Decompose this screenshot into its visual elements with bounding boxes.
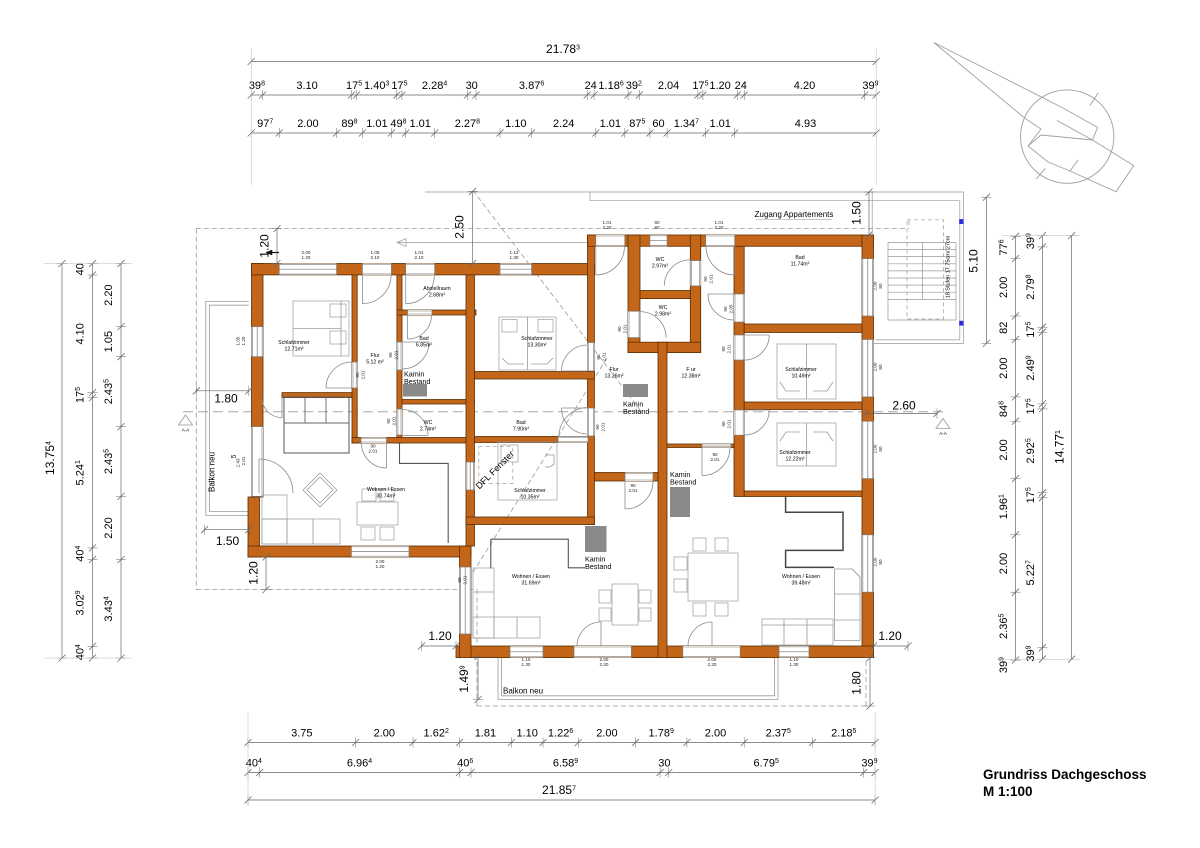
svg-text:24: 24 xyxy=(585,80,597,92)
svg-text:1.50: 1.50 xyxy=(216,534,240,548)
svg-text:Bestand: Bestand xyxy=(404,377,430,386)
svg-text:2.20: 2.20 xyxy=(708,662,717,667)
svg-text:80: 80 xyxy=(878,446,883,452)
svg-text:80: 80 xyxy=(878,283,883,289)
svg-text:WC: WC xyxy=(424,420,433,426)
svg-text:2.00: 2.00 xyxy=(998,439,1010,460)
svg-text:Bad: Bad xyxy=(516,420,525,426)
svg-text:Wohnen / Essen: Wohnen / Essen xyxy=(782,574,820,580)
svg-text:Wohnen / Essen: Wohnen / Essen xyxy=(512,574,550,580)
svg-text:2.00: 2.00 xyxy=(998,357,1010,378)
svg-text:90: 90 xyxy=(703,276,708,282)
svg-text:1.05: 1.05 xyxy=(236,336,241,345)
svg-text:1.01: 1.01 xyxy=(366,118,387,130)
svg-text:1.20: 1.20 xyxy=(302,255,311,260)
svg-text:4.93: 4.93 xyxy=(795,118,816,130)
svg-text:80: 80 xyxy=(878,364,883,370)
svg-text:1.10: 1.10 xyxy=(516,728,537,740)
svg-text:90: 90 xyxy=(721,421,726,427)
svg-text:Bestand: Bestand xyxy=(670,478,696,487)
svg-text:90: 90 xyxy=(386,418,391,424)
svg-text:2.98m²: 2.98m² xyxy=(655,312,671,318)
svg-text:Flur: Flur xyxy=(371,353,380,359)
svg-text:7.90m²: 7.90m² xyxy=(513,427,529,433)
svg-text:1.10: 1.10 xyxy=(505,118,526,130)
svg-text:5.10: 5.10 xyxy=(967,249,981,273)
svg-text:1.30: 1.30 xyxy=(510,255,519,260)
svg-text:1.50: 1.50 xyxy=(850,201,864,225)
svg-text:1.81: 1.81 xyxy=(475,728,496,740)
svg-text:1.01: 1.01 xyxy=(600,118,621,130)
svg-text:Schlafzimmer: Schlafzimmer xyxy=(514,488,546,494)
svg-text:12.38m²: 12.38m² xyxy=(681,374,700,380)
svg-text:Grundriss Dachgeschoss: Grundriss Dachgeschoss xyxy=(983,767,1147,782)
svg-text:90: 90 xyxy=(355,372,360,378)
svg-text:13.754: 13.754 xyxy=(43,441,57,475)
svg-text:1.80: 1.80 xyxy=(850,671,864,695)
svg-text:13.26m²: 13.26m² xyxy=(604,374,623,380)
svg-text:Schlafzimmer: Schlafzimmer xyxy=(278,340,310,346)
svg-text:2.01: 2.01 xyxy=(601,422,606,431)
svg-text:2.60: 2.60 xyxy=(892,399,916,413)
svg-text:Bad: Bad xyxy=(795,255,804,261)
svg-text:WC: WC xyxy=(656,257,665,263)
svg-text:1.20: 1.20 xyxy=(709,80,730,92)
svg-text:80: 80 xyxy=(878,559,883,565)
svg-text:Schlafzimmer: Schlafzimmer xyxy=(521,336,553,342)
svg-text:90: 90 xyxy=(457,577,462,583)
svg-text:2.20: 2.20 xyxy=(603,225,612,230)
svg-text:4.20: 4.20 xyxy=(794,80,815,92)
svg-text:Schlafzimmer: Schlafzimmer xyxy=(785,367,817,373)
svg-text:1.30: 1.30 xyxy=(522,662,531,667)
svg-text:24: 24 xyxy=(735,80,747,92)
svg-text:1.20: 1.20 xyxy=(376,564,385,569)
svg-text:3.75: 3.75 xyxy=(291,728,312,740)
svg-text:2.50: 2.50 xyxy=(453,215,467,239)
svg-text:2.68m²: 2.68m² xyxy=(429,293,445,299)
svg-text:2.00: 2.00 xyxy=(297,118,318,130)
svg-text:2.00: 2.00 xyxy=(998,277,1010,298)
svg-text:Balkon neu: Balkon neu xyxy=(503,687,543,696)
svg-text:90: 90 xyxy=(617,326,622,332)
svg-text:2.01: 2.01 xyxy=(394,350,399,359)
svg-text:2.01: 2.01 xyxy=(709,274,714,283)
svg-text:2.20: 2.20 xyxy=(103,284,115,305)
svg-text:39.48m²: 39.48m² xyxy=(791,581,810,587)
svg-text:90: 90 xyxy=(595,424,600,430)
svg-text:2.05: 2.05 xyxy=(729,304,734,313)
svg-text:1.05: 1.05 xyxy=(103,331,115,352)
svg-text:2.74m²: 2.74m² xyxy=(420,427,436,433)
svg-text:Bestand: Bestand xyxy=(585,562,611,571)
svg-text:4.10: 4.10 xyxy=(75,323,87,344)
svg-text:2.00: 2.00 xyxy=(873,281,878,290)
svg-text:90: 90 xyxy=(388,352,393,358)
svg-text:30: 30 xyxy=(466,80,478,92)
svg-text:2.00: 2.00 xyxy=(998,553,1010,574)
svg-text:2.01: 2.01 xyxy=(727,419,732,428)
svg-text:12.22m²: 12.22m² xyxy=(785,457,804,463)
svg-text:90: 90 xyxy=(723,306,728,312)
svg-text:10.49m²: 10.49m² xyxy=(791,374,810,380)
svg-text:2.01: 2.01 xyxy=(711,457,720,462)
svg-text:2.00: 2.00 xyxy=(374,728,395,740)
svg-text:Wohnen / Essen: Wohnen / Essen xyxy=(367,487,405,493)
svg-text:2.20: 2.20 xyxy=(715,225,724,230)
svg-text:2.00: 2.00 xyxy=(873,557,878,566)
svg-text:Flur: Flur xyxy=(610,367,619,373)
svg-text:2.97m²: 2.97m² xyxy=(652,264,668,270)
svg-text:1.499: 1.499 xyxy=(457,665,471,692)
svg-text:WC: WC xyxy=(659,305,668,311)
svg-text:6.85m²: 6.85m² xyxy=(416,343,432,349)
svg-text:18 Stufen 17.75cm/ 27cm: 18 Stufen 17.75cm/ 27cm xyxy=(946,235,952,298)
svg-text:1.20: 1.20 xyxy=(241,336,246,345)
svg-text:30: 30 xyxy=(658,758,670,770)
svg-text:A-A: A-A xyxy=(182,428,190,433)
svg-text:2.10: 2.10 xyxy=(371,255,380,260)
svg-text:1.01: 1.01 xyxy=(709,118,730,130)
svg-text:2.20: 2.20 xyxy=(600,662,609,667)
svg-text:30.74m²: 30.74m² xyxy=(376,494,395,500)
svg-text:2.20: 2.20 xyxy=(103,517,115,538)
svg-text:2.01: 2.01 xyxy=(369,449,378,454)
svg-text:82: 82 xyxy=(998,322,1010,334)
svg-text:Bad: Bad xyxy=(419,336,428,342)
svg-text:2.01: 2.01 xyxy=(727,344,732,353)
svg-text:11.74m²: 11.74m² xyxy=(791,262,810,268)
svg-text:Abstellraum: Abstellraum xyxy=(423,286,450,292)
svg-text:21.783: 21.783 xyxy=(546,42,580,56)
svg-text:1.20: 1.20 xyxy=(247,561,261,585)
svg-text:2.01: 2.01 xyxy=(241,456,246,465)
svg-text:1.30: 1.30 xyxy=(790,662,799,667)
svg-text:5.12 m²: 5.12 m² xyxy=(366,360,384,366)
svg-text:Balkon neu: Balkon neu xyxy=(208,452,217,492)
svg-text:40: 40 xyxy=(75,263,87,275)
svg-text:2.01: 2.01 xyxy=(623,324,628,333)
svg-text:2.04: 2.04 xyxy=(658,80,679,92)
svg-text:2.00: 2.00 xyxy=(705,728,726,740)
svg-text:90: 90 xyxy=(721,346,726,352)
svg-text:60: 60 xyxy=(654,225,660,230)
svg-text:A-A: A-A xyxy=(939,431,947,436)
svg-text:31.69m²: 31.69m² xyxy=(521,581,540,587)
svg-text:Bestand: Bestand xyxy=(623,407,649,416)
svg-text:2.00: 2.00 xyxy=(873,444,878,453)
svg-text:60: 60 xyxy=(652,118,664,130)
svg-text:Zugang Appartements: Zugang Appartements xyxy=(755,210,834,219)
svg-text:1.01: 1.01 xyxy=(409,118,430,130)
svg-text:2.01: 2.01 xyxy=(463,575,468,584)
svg-text:12.71m²: 12.71m² xyxy=(284,347,303,353)
svg-text:14.771: 14.771 xyxy=(1053,430,1067,464)
svg-text:2.01: 2.01 xyxy=(629,488,638,493)
svg-text:1.20: 1.20 xyxy=(428,629,452,643)
svg-text:1.20: 1.20 xyxy=(878,629,902,643)
svg-text:2.10: 2.10 xyxy=(415,255,424,260)
svg-text:3.10: 3.10 xyxy=(296,80,317,92)
svg-text:Schlafzimmer: Schlafzimmer xyxy=(779,450,811,456)
svg-text:M 1:100: M 1:100 xyxy=(983,784,1033,799)
svg-text:1.80: 1.80 xyxy=(214,392,238,406)
svg-text:21.857: 21.857 xyxy=(542,783,576,797)
svg-text:2.00: 2.00 xyxy=(596,728,617,740)
svg-text:10.35m²: 10.35m² xyxy=(520,495,539,501)
svg-text:F ur: F ur xyxy=(686,367,695,373)
svg-text:2.01: 2.01 xyxy=(361,370,366,379)
svg-text:2.01: 2.01 xyxy=(392,416,397,425)
svg-text:2.24: 2.24 xyxy=(553,118,574,130)
svg-text:90: 90 xyxy=(596,354,601,360)
svg-text:13.30m²: 13.30m² xyxy=(527,343,546,349)
svg-text:2.00: 2.00 xyxy=(873,362,878,371)
svg-text:2.01: 2.01 xyxy=(602,352,607,361)
